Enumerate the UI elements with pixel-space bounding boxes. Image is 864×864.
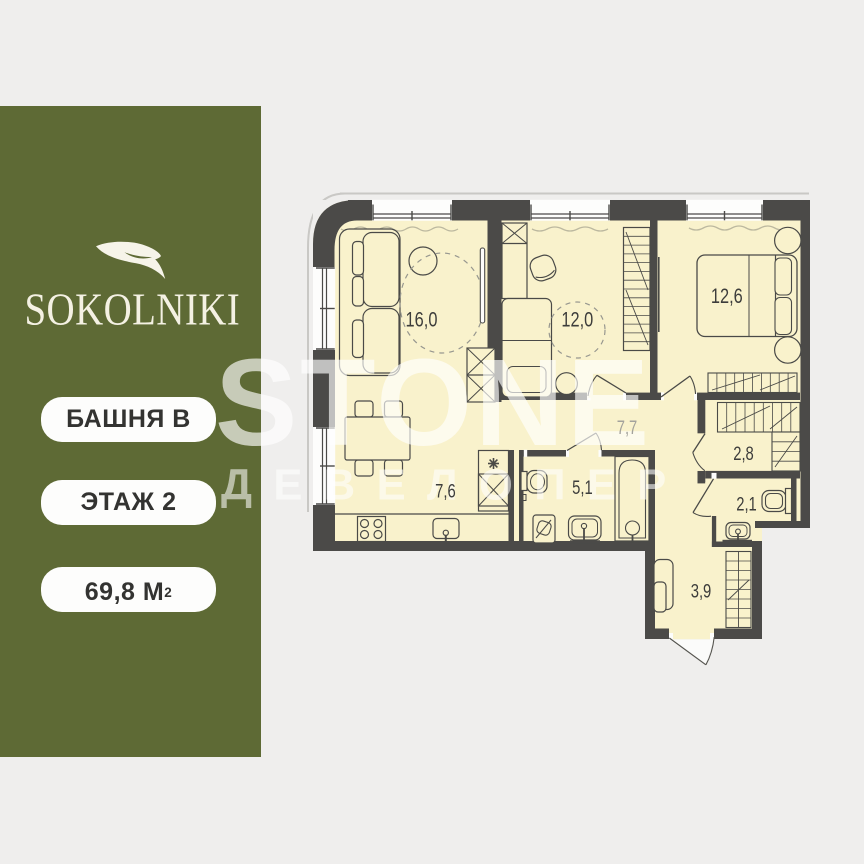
svg-text:5,1: 5,1 [572, 477, 593, 498]
svg-text:7,7: 7,7 [617, 417, 638, 438]
svg-text:12,0: 12,0 [561, 308, 593, 331]
svg-text:2,8: 2,8 [733, 443, 754, 464]
svg-text:12,6: 12,6 [711, 284, 743, 307]
svg-text:2,1: 2,1 [736, 494, 757, 515]
svg-text:7,6: 7,6 [435, 481, 456, 502]
svg-text:3,9: 3,9 [691, 581, 712, 602]
svg-text:16,0: 16,0 [406, 308, 438, 331]
